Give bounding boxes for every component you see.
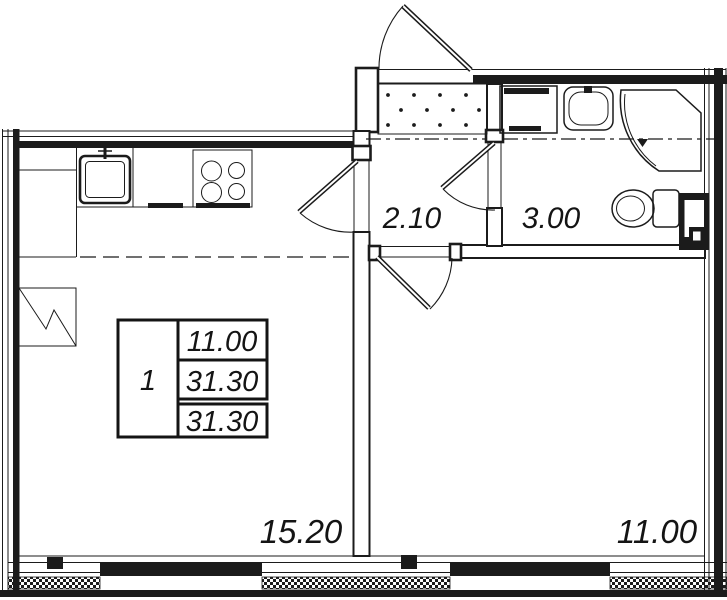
top-wall-left-core bbox=[13, 141, 360, 148]
total-area-value: 31.30 bbox=[186, 366, 259, 398]
apartment-info-table: 1 11.00 31.30 31.30 bbox=[118, 320, 267, 438]
bedroom-door-right-jamb bbox=[450, 244, 461, 260]
partition-lower bbox=[354, 232, 370, 556]
bottom-wall-solid-1 bbox=[100, 562, 262, 576]
wardrobe bbox=[378, 84, 487, 134]
duct-shaft bbox=[679, 193, 709, 250]
window-mullion-2 bbox=[401, 555, 417, 569]
entrance-left-jamb bbox=[356, 68, 378, 132]
living-area-value: 11.00 bbox=[187, 326, 257, 358]
left-wall-core bbox=[13, 129, 20, 592]
bathroom-wall-lower bbox=[487, 208, 502, 246]
top-wall-right-core bbox=[473, 75, 727, 84]
tap-icon bbox=[584, 86, 592, 93]
right-wall-core bbox=[714, 68, 723, 592]
floor-plan: 1 11.00 31.30 31.30 2.10 3.00 15.20 11.0… bbox=[0, 0, 727, 600]
floor-plan-drawing: 1 11.00 31.30 31.30 2.10 3.00 15.20 11.0… bbox=[0, 0, 727, 600]
bottom-wall-outer-edge bbox=[0, 590, 727, 597]
bottom-wall-solid-2 bbox=[450, 562, 610, 576]
total-area-balcony-value: 31.30 bbox=[186, 406, 259, 438]
rooms-count-value: 1 bbox=[140, 365, 156, 397]
bedroom-area-label: 11.00 bbox=[617, 513, 698, 550]
living-kitchen-area-label: 15.20 bbox=[260, 513, 343, 550]
window-mullion-1 bbox=[47, 557, 63, 569]
bathroom-area-label: 3.00 bbox=[522, 202, 581, 235]
hallway-area-label: 2.10 bbox=[382, 202, 442, 235]
kitchen-door-top-jamb bbox=[353, 146, 371, 160]
